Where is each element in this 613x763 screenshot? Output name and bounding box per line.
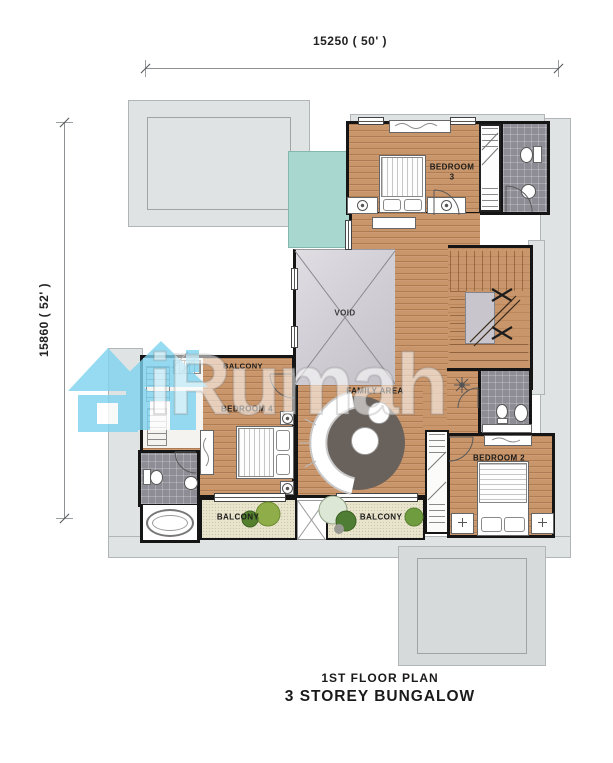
dimension-left-line: [64, 122, 65, 518]
wardrobe-shelves: [482, 128, 498, 148]
wardrobe-bedroom2: [425, 430, 449, 534]
sink-icon: [521, 184, 536, 199]
bench-bedroom4: [200, 430, 214, 475]
window: [345, 220, 352, 250]
sliding-door: [336, 493, 418, 502]
bed-pillow: [383, 199, 401, 211]
window: [358, 117, 384, 125]
console-table: [372, 217, 416, 229]
window: [291, 268, 298, 290]
sink-icon: [184, 476, 198, 490]
toilet-icon: [150, 470, 163, 485]
wardrobe-bedroom3: [479, 124, 501, 212]
label-balcony-lower-middle: BALCONY: [360, 513, 402, 522]
bed-bedroom2: [477, 461, 529, 536]
dimension-top-label: 15250 ( 50' ): [250, 34, 450, 48]
roof-lower-right-inner: [417, 558, 527, 654]
stair-flight-top: [450, 251, 528, 291]
wardrobe-shelves: [429, 504, 445, 528]
bathtub-inner: [152, 515, 188, 531]
lamp-icon: [441, 200, 452, 211]
bed-mattress: [381, 157, 423, 197]
bed-pillow: [481, 517, 502, 532]
plus-icon: [458, 518, 467, 527]
floor-plan-canvas: 15250 ( 50' ) 15860 ( 52' ): [0, 0, 613, 763]
toilet-icon: [520, 147, 533, 163]
nightstand: [347, 197, 378, 214]
label-bedroom2: BEDROOM 2: [473, 454, 525, 463]
window: [450, 117, 476, 125]
label-bedroom3-number: 3: [450, 173, 455, 182]
dresser-bedroom2: [484, 435, 532, 446]
plan-title: 1ST FLOOR PLAN: [280, 671, 480, 685]
bed-pillow: [404, 199, 422, 211]
lamp-icon: [357, 200, 368, 211]
wardrobe-shelves: [482, 188, 498, 208]
dimension-top-line: [145, 68, 558, 69]
bed-mattress: [238, 428, 274, 477]
sliding-door: [214, 493, 286, 502]
nightstand: [427, 197, 466, 214]
bed-bedroom3: [379, 155, 426, 213]
plus-icon: [538, 518, 547, 527]
dimension-left-label: 15860 ( 52' ): [37, 240, 53, 400]
nightstand: [451, 513, 474, 534]
label-balcony-lower-left: BALCONY: [217, 513, 259, 522]
watermark-brand-text: iRumah: [148, 336, 548, 435]
wardrobe-shelves: [429, 434, 445, 456]
room-bath-3: [500, 121, 550, 215]
toilet-tank: [533, 146, 542, 163]
plan-subtitle: 3 STOREY BUNGALOW: [260, 688, 500, 706]
bed-pillow: [276, 454, 290, 475]
label-void: VOID: [334, 309, 355, 318]
label-bedroom3: BEDROOM: [430, 163, 475, 172]
bed-mattress: [479, 463, 527, 503]
dresser-bedroom3: [389, 120, 451, 133]
planter-box: [297, 500, 327, 540]
bed-pillow: [504, 517, 525, 532]
nightstand: [531, 513, 554, 534]
bathtub: [146, 509, 194, 537]
roof-lower-rect-inner: [147, 117, 291, 210]
